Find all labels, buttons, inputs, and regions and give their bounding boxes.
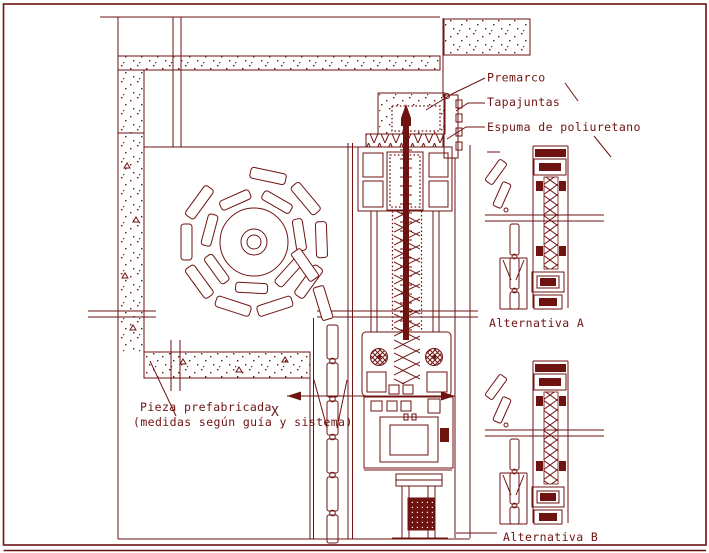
espuma-leader-line (447, 127, 485, 139)
alternativa-b-label: Alternativa B (503, 530, 598, 544)
tapajuntas-label: Tapajuntas (487, 95, 560, 109)
roller-shutter-drum (181, 167, 328, 317)
rolled-slats-inner-ring (201, 189, 307, 294)
leader-extension-line (594, 136, 611, 157)
premarco-label: Premarco (487, 71, 546, 85)
meeting-rail-profile (362, 332, 451, 396)
cad-drawing-canvas: X Premarco Tapajuntas Espuma de poliuret… (0, 0, 709, 553)
sill-glazing-base (364, 470, 452, 538)
tapajuntas-leader-line (456, 103, 485, 111)
alternativa-a-detail (485, 146, 604, 309)
leader-extension-line (565, 83, 578, 101)
pieza-label-line1: Pieza prefabricada (140, 400, 272, 414)
premarco-profile (378, 93, 445, 134)
lower-sash-profile (364, 397, 453, 468)
shutter-box-section-drawing: X Premarco Tapajuntas Espuma de poliuret… (0, 0, 709, 553)
alternativa-b-detail (485, 361, 604, 524)
drawing-border (4, 4, 707, 551)
window-frame-section (144, 93, 470, 538)
espuma-label: Espuma de poliuretano (487, 120, 641, 134)
insulated-panel (371, 211, 439, 332)
alternativa-a-label: Alternativa A (489, 316, 584, 330)
pieza-label-line2: (medidas según guía y sistema) (133, 415, 353, 429)
tapajuntas-profile (444, 94, 462, 159)
left-wall-column (118, 17, 144, 539)
